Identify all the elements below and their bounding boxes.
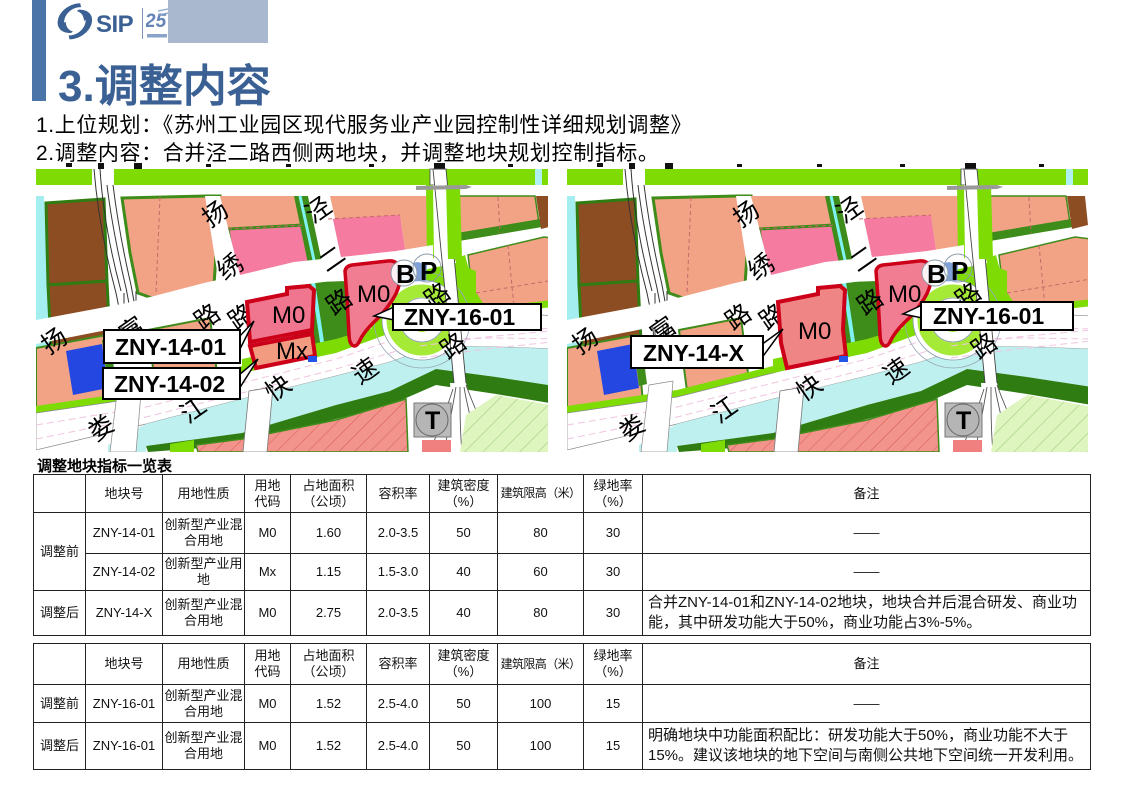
- svg-text:ZNY-16-01: ZNY-16-01: [404, 304, 515, 330]
- svg-text:M0: M0: [798, 318, 831, 345]
- svg-text:ZNY-16-01: ZNY-16-01: [933, 303, 1044, 329]
- svg-text:SIP: SIP: [96, 11, 134, 38]
- svg-text:ZNY-14-02: ZNY-14-02: [114, 371, 225, 397]
- svg-text:ZNY-14-X: ZNY-14-X: [643, 340, 745, 366]
- svg-text:ZNY-14-01: ZNY-14-01: [115, 334, 226, 360]
- svg-text:M0: M0: [272, 302, 305, 329]
- svg-text:Mx: Mx: [276, 338, 308, 365]
